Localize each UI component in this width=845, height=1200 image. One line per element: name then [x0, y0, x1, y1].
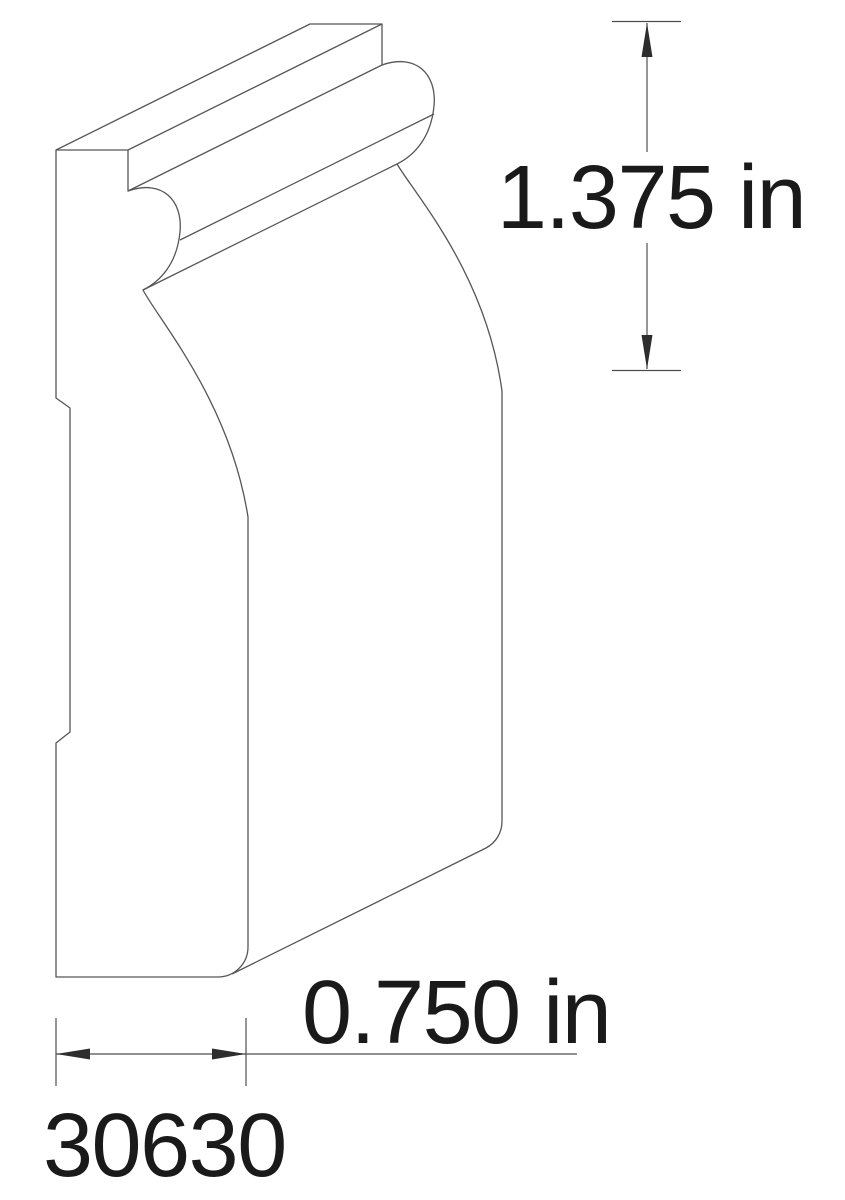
part-number: 30630 — [43, 1096, 286, 1196]
molding-profile-drawing: 1.375 in 0.750 in 30630 — [0, 0, 845, 1200]
height-dimension-label: 1.375 in — [497, 148, 805, 248]
width-dimension-label: 0.750 in — [302, 963, 610, 1063]
page: 1.375 in 0.750 in 30630 — [0, 0, 845, 1200]
